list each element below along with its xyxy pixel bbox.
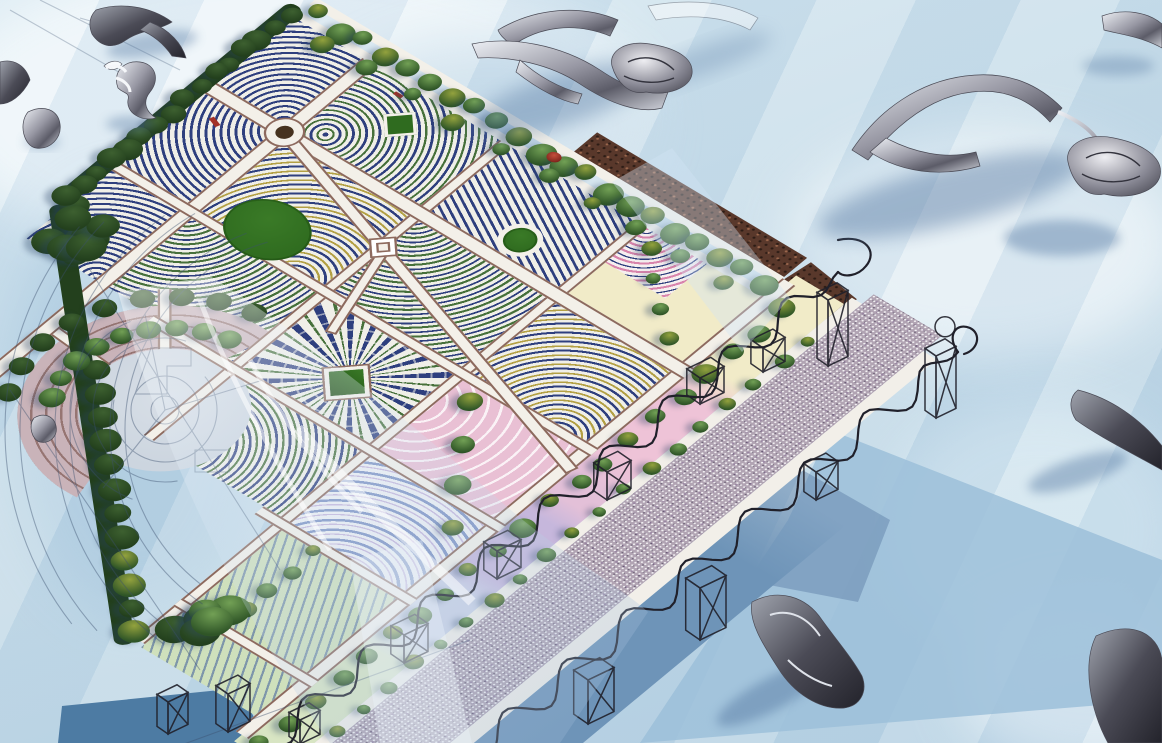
collage-board — [0, 0, 1162, 743]
ribbon-sculpture-corner — [1102, 12, 1162, 48]
knot-blob — [611, 43, 692, 93]
wireframe-cube — [157, 685, 188, 734]
overlay-artwork — [0, 0, 1162, 743]
ribbon-sculpture-faint — [648, 2, 758, 30]
serpentine-end-curl — [838, 239, 871, 276]
wireframe-cube — [216, 675, 250, 732]
knot-blob — [1068, 136, 1161, 196]
wireframe-pylon — [925, 317, 956, 418]
shard-corner — [612, 148, 790, 352]
rock-sculpture-bottom-right — [1089, 629, 1162, 743]
wireframe-cube — [686, 566, 726, 640]
rock-sculpture — [31, 415, 56, 442]
wireframe-cube — [817, 283, 848, 366]
shard-overlays — [118, 148, 790, 743]
ribbon-sculpture-left-edge — [0, 61, 30, 104]
